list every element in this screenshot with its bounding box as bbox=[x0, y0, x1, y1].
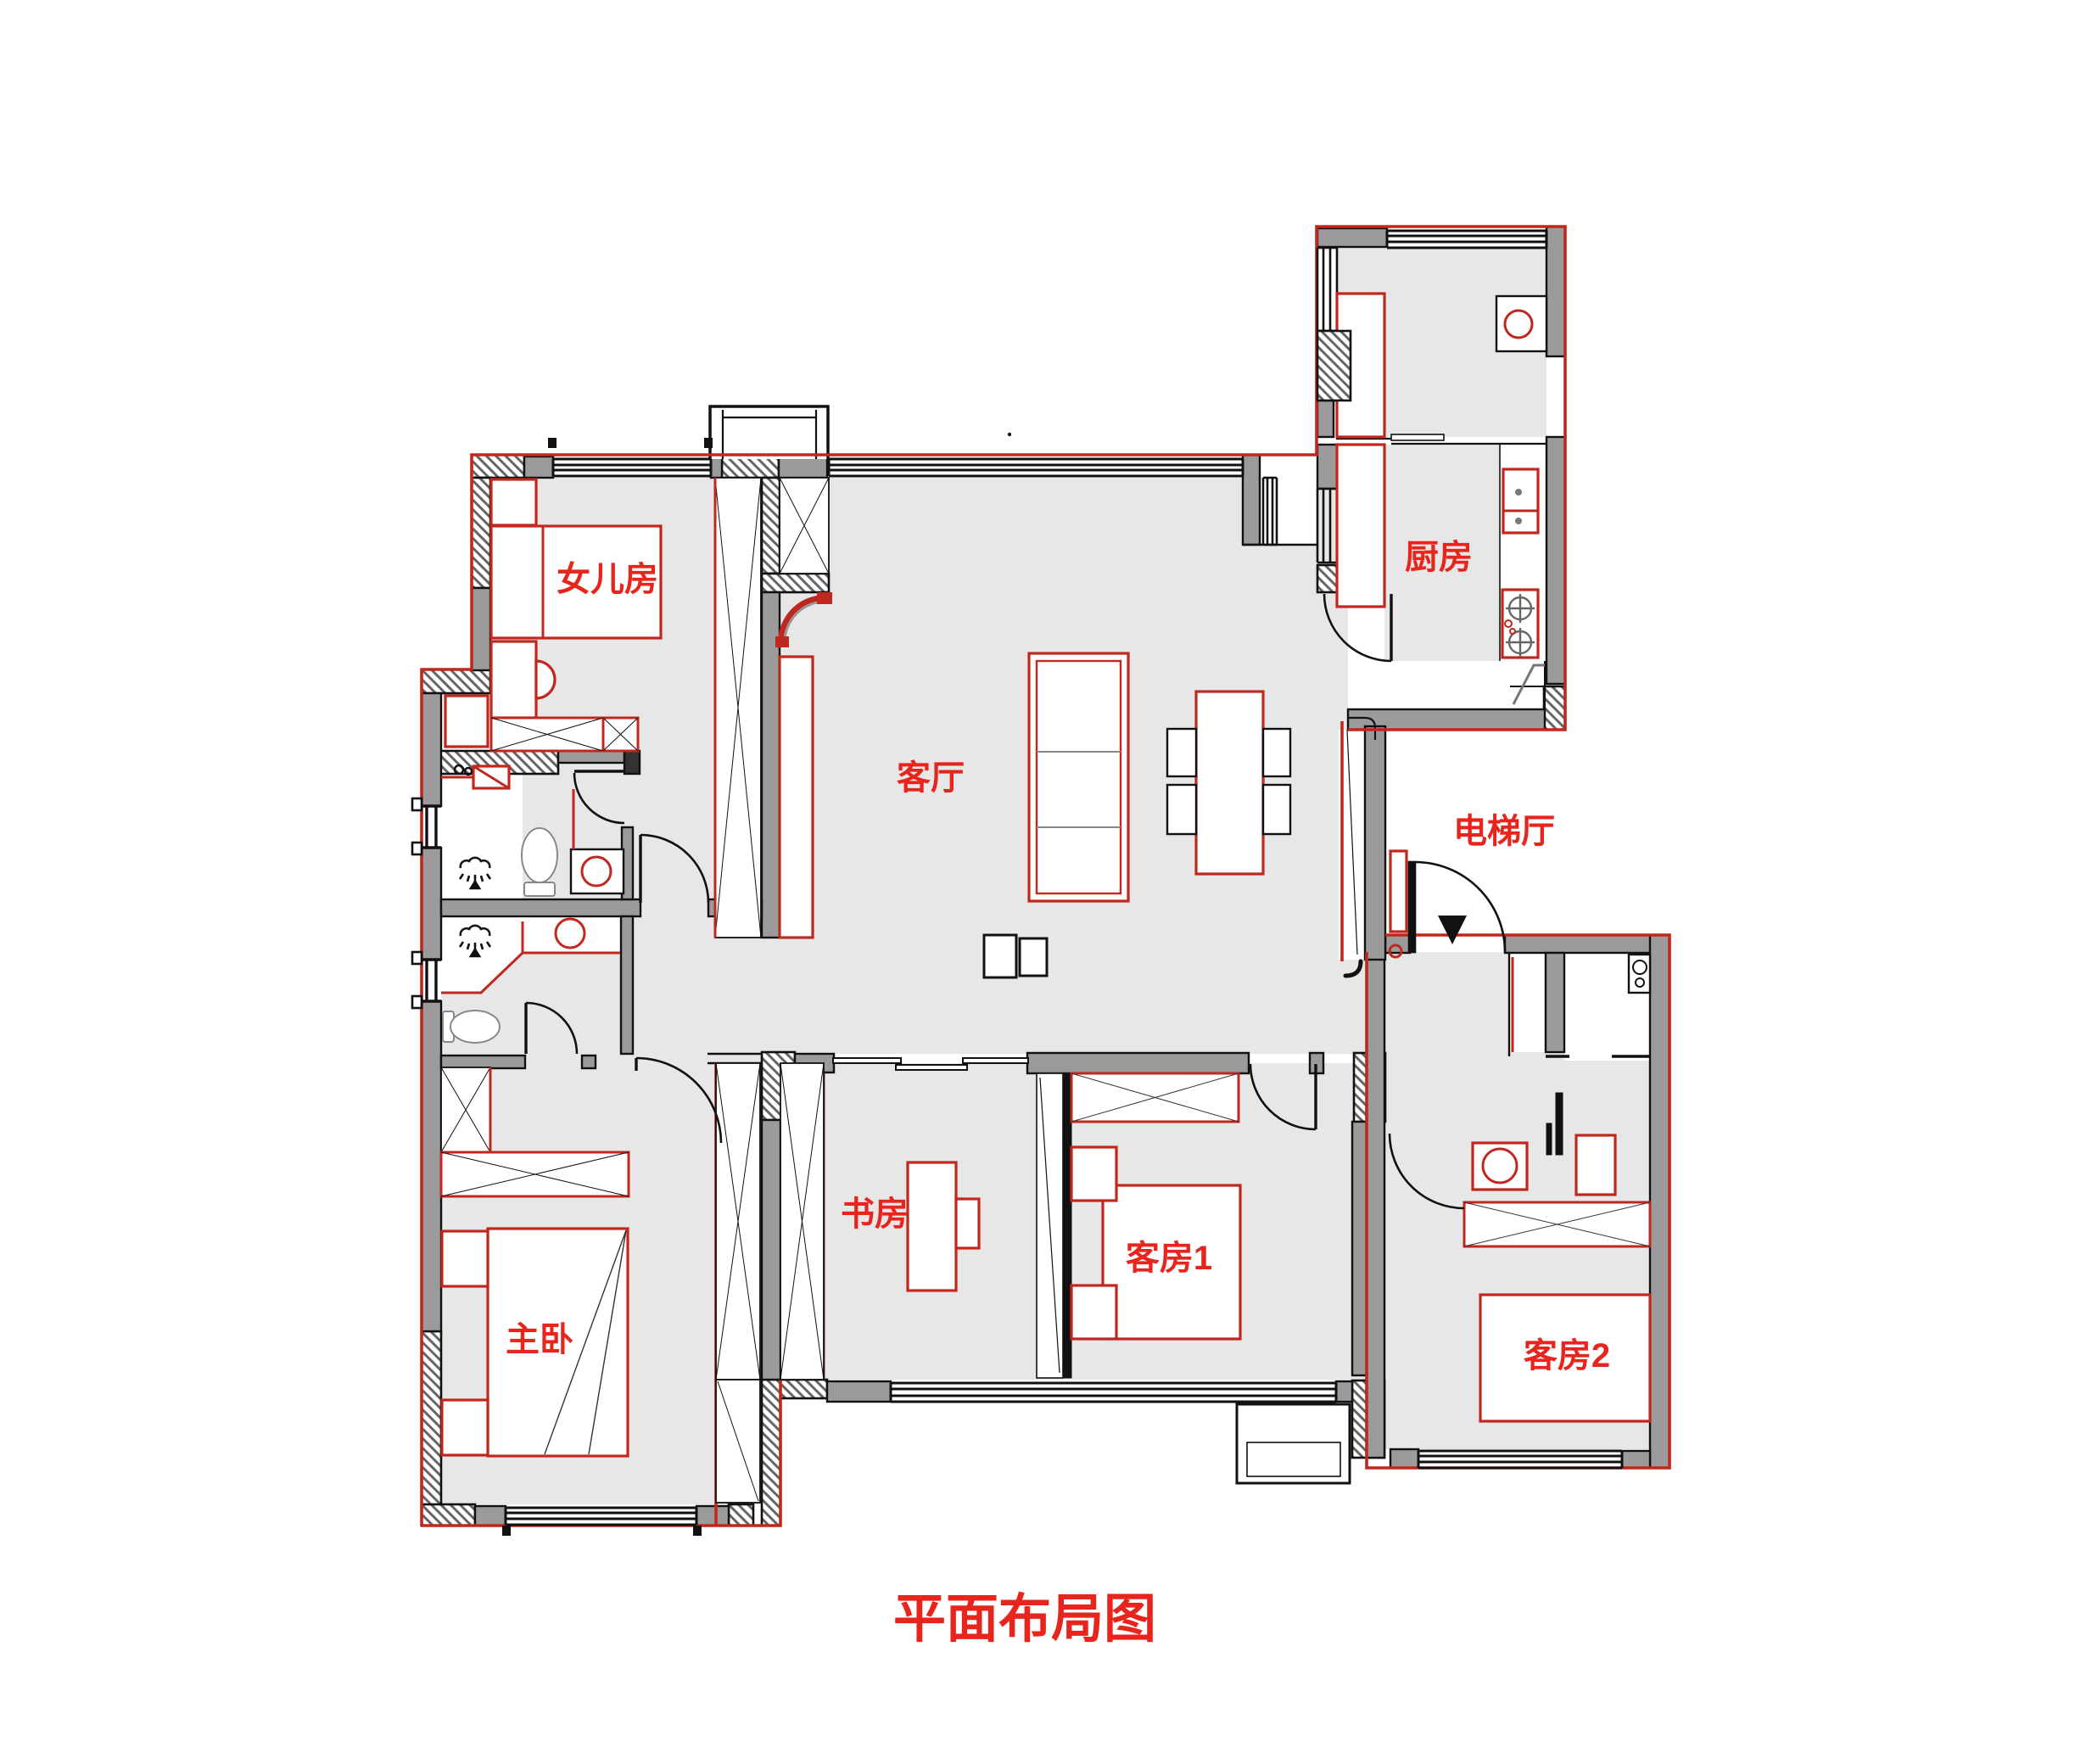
svg-text:主卧: 主卧 bbox=[506, 1321, 573, 1358]
svg-text:客房2: 客房2 bbox=[1524, 1337, 1610, 1375]
svg-text:客房1: 客房1 bbox=[1126, 1240, 1212, 1277]
svg-text:电梯厅: 电梯厅 bbox=[1453, 813, 1555, 850]
svg-text:平面布局图: 平面布局图 bbox=[893, 1590, 1156, 1649]
svg-text:厨房: 厨房 bbox=[1405, 539, 1473, 576]
svg-text:女儿房: 女儿房 bbox=[557, 561, 658, 598]
svg-text:书房: 书房 bbox=[841, 1196, 909, 1233]
svg-text:客厅: 客厅 bbox=[897, 759, 965, 797]
